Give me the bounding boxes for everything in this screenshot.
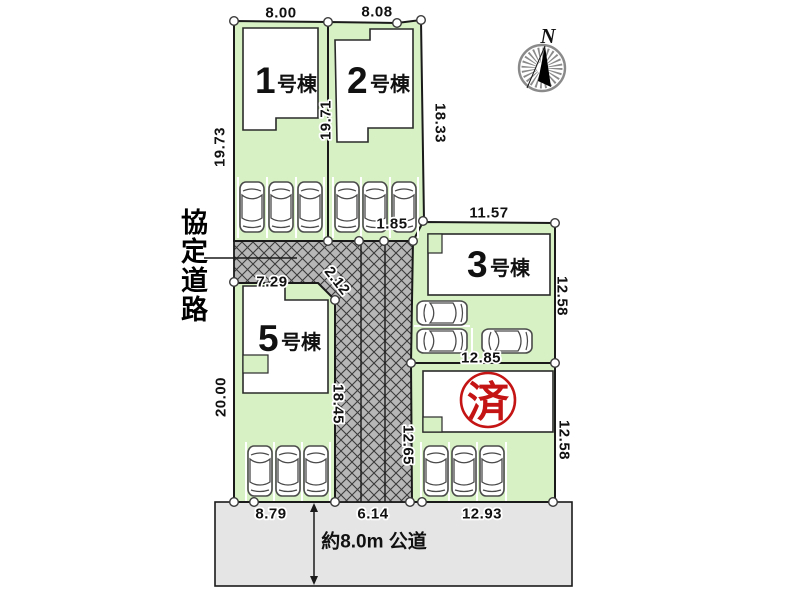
dim-top-lot5: 7.29 bbox=[256, 274, 287, 291]
building-3-footprint bbox=[428, 234, 550, 295]
lot-3-suffix: 号棟 bbox=[490, 256, 531, 280]
car-icon bbox=[248, 446, 272, 496]
car-icon bbox=[276, 446, 300, 496]
car-icon bbox=[417, 301, 467, 325]
dim-right-lot4: 12.58 bbox=[556, 420, 573, 460]
dim-top-lot1: 8.00 bbox=[265, 5, 296, 22]
lot-1-number: 1 bbox=[255, 60, 276, 101]
car-icon bbox=[424, 446, 448, 496]
agreement-road-label: 協定道路 bbox=[176, 208, 208, 324]
building-3-notch bbox=[428, 234, 442, 253]
dim-frontage-lot4: 12.93 bbox=[462, 506, 502, 523]
car-icon bbox=[240, 182, 264, 232]
lot-5-number: 5 bbox=[258, 318, 279, 359]
dim-right-lot3: 12.58 bbox=[554, 276, 571, 316]
car-icon bbox=[269, 182, 293, 232]
dim-frontage-road: 6.14 bbox=[357, 506, 388, 523]
plat-svg: 済 N 8.00 8.08 19.73 19.71 18.33 1.85 11.… bbox=[0, 0, 800, 600]
public-road-label: 約8.0m 公道 bbox=[321, 530, 427, 553]
dim-agreement-road-length: 18.45 bbox=[330, 384, 347, 424]
dim-frontage-lot5: 8.79 bbox=[255, 506, 286, 523]
car-icon bbox=[298, 182, 322, 232]
car-icon bbox=[480, 446, 504, 496]
car-icon bbox=[304, 446, 328, 496]
dim-top-lot3: 11.57 bbox=[469, 205, 508, 222]
dim-top-lot2: 8.08 bbox=[361, 4, 392, 21]
dim-right-lot2: 18.33 bbox=[432, 103, 449, 143]
building-4-notch bbox=[423, 417, 442, 432]
dim-left-lot4: 12.65 bbox=[400, 425, 417, 465]
dim-lot3-bottom: 12.85 bbox=[461, 350, 501, 367]
dim-divider-lot1-lot2: 19.71 bbox=[318, 100, 335, 140]
car-icon bbox=[335, 182, 359, 232]
dim-left-lot5: 20.00 bbox=[213, 377, 230, 417]
lot-1-suffix: 号棟 bbox=[277, 72, 318, 96]
lot-3-number: 3 bbox=[467, 244, 488, 285]
lot-2-suffix: 号棟 bbox=[370, 72, 411, 96]
lot-5-suffix: 号棟 bbox=[281, 330, 322, 354]
car-icon bbox=[452, 446, 476, 496]
sold-stamp-text: 済 bbox=[467, 379, 510, 426]
car-icon bbox=[417, 329, 467, 353]
dim-left-lot1: 19.73 bbox=[212, 127, 229, 167]
compass-rose bbox=[519, 45, 565, 91]
north-label: N bbox=[539, 24, 556, 48]
plat-diagram: 済 N 8.00 8.08 19.73 19.71 18.33 1.85 11.… bbox=[0, 0, 800, 600]
dim-lot2-corner: 1.85 bbox=[376, 216, 407, 233]
lot-2-number: 2 bbox=[347, 60, 368, 101]
